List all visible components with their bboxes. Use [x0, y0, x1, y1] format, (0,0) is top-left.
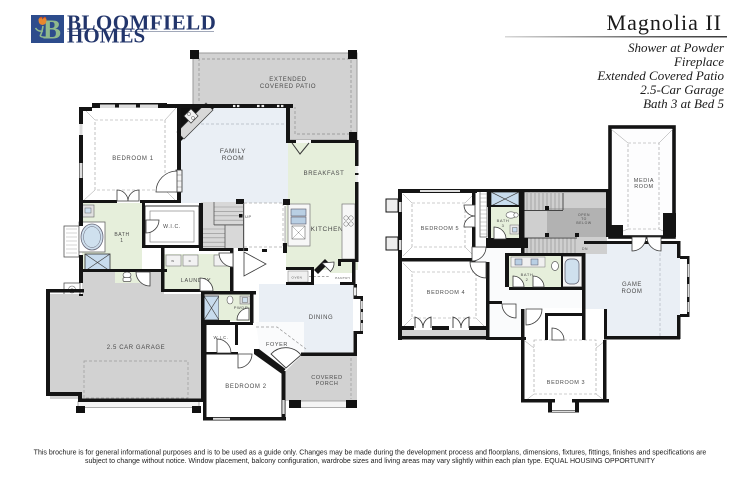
- svg-text:Magnolia II: Magnolia II: [607, 10, 722, 35]
- svg-text:KITCHEN: KITCHEN: [311, 226, 344, 233]
- svg-text:ROOM: ROOM: [222, 155, 245, 162]
- svg-text:BEDROOM 4: BEDROOM 4: [427, 290, 465, 296]
- svg-text:FAMILY: FAMILY: [220, 148, 246, 155]
- svg-text:BREAKFAST: BREAKFAST: [304, 171, 345, 177]
- svg-text:Extended Covered Patio: Extended Covered Patio: [596, 68, 724, 83]
- svg-text:BEDROOM 5: BEDROOM 5: [421, 226, 459, 232]
- svg-text:1: 1: [120, 238, 123, 244]
- svg-text:W.I.C.: W.I.C.: [163, 224, 181, 230]
- svg-text:D: D: [189, 259, 192, 263]
- svg-text:UP: UP: [245, 214, 252, 219]
- svg-text:BEDROOM 1: BEDROOM 1: [112, 156, 153, 162]
- svg-text:BEDROOM 2: BEDROOM 2: [225, 384, 266, 390]
- svg-text:2.5 CAR GARAGE: 2.5 CAR GARAGE: [107, 345, 165, 351]
- svg-text:2: 2: [526, 277, 529, 282]
- svg-text:PANTRY: PANTRY: [335, 276, 351, 280]
- svg-text:ROOM: ROOM: [634, 184, 654, 190]
- svg-text:FOYER: FOYER: [266, 342, 288, 348]
- svg-text:EXTENDED: EXTENDED: [269, 77, 307, 83]
- svg-text:Shower at Powder: Shower at Powder: [628, 40, 725, 55]
- svg-text:PORCH: PORCH: [316, 381, 339, 387]
- svg-text:2.5-Car Garage: 2.5-Car Garage: [640, 82, 724, 97]
- svg-text:This brochure is for general i: This brochure is for general information…: [34, 450, 707, 457]
- svg-text:W: W: [171, 259, 174, 263]
- svg-text:Bath 3 at Bed 5: Bath 3 at Bed 5: [643, 96, 724, 111]
- svg-text:3: 3: [502, 223, 505, 228]
- svg-text:HOMES: HOMES: [67, 24, 145, 48]
- svg-text:COVERED PATIO: COVERED PATIO: [260, 84, 316, 90]
- svg-text:Fireplace: Fireplace: [673, 54, 724, 69]
- svg-text:DN: DN: [582, 247, 588, 251]
- svg-text:BELOW: BELOW: [576, 221, 591, 225]
- svg-text:subject to change without noti: subject to change without notice. Window…: [85, 458, 655, 465]
- svg-text:GAME: GAME: [622, 282, 642, 288]
- svg-text:ROOM: ROOM: [621, 289, 642, 295]
- svg-text:OVEN: OVEN: [292, 276, 303, 280]
- svg-text:DINING: DINING: [309, 315, 334, 321]
- svg-text:BEDROOM 3: BEDROOM 3: [547, 380, 585, 386]
